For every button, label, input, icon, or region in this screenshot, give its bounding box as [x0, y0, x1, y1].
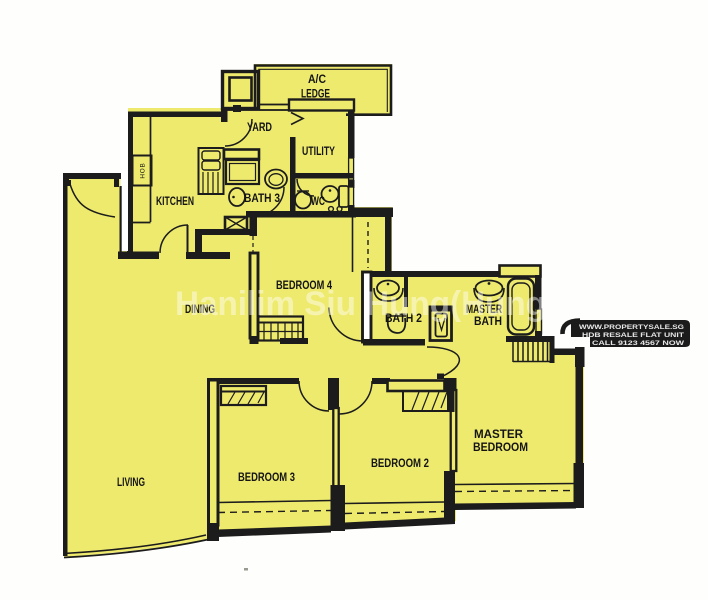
svg-text:A/C: A/C [308, 72, 326, 86]
svg-text:Hanilim Siu Hung(Hung): Hanilim Siu Hung(Hung) [175, 285, 557, 323]
svg-text:BEDROOM 2: BEDROOM 2 [371, 456, 429, 470]
svg-text:CALL 9123 4567 NOW: CALL 9123 4567 NOW [592, 340, 684, 347]
svg-text:WWW.PROPERTYSALE.SG: WWW.PROPERTYSALE.SG [579, 324, 684, 331]
svg-text:BATH 3: BATH 3 [244, 191, 280, 205]
svg-text:YARD: YARD [247, 120, 272, 134]
svg-text:HOB: HOB [140, 162, 147, 178]
svg-text:BEDROOM 3: BEDROOM 3 [238, 470, 295, 484]
svg-text:HDB RESALE FLAT UNIT: HDB RESALE FLAT UNIT [582, 332, 684, 339]
svg-text:MASTER: MASTER [474, 427, 523, 441]
svg-text:KITCHEN: KITCHEN [156, 194, 194, 208]
svg-text:UTILITY: UTILITY [302, 144, 335, 158]
svg-text:LIVING: LIVING [117, 475, 145, 489]
svg-text:BEDROOM: BEDROOM [473, 440, 528, 454]
svg-text:WC: WC [311, 194, 325, 208]
svg-text:LEDGE: LEDGE [301, 87, 330, 101]
